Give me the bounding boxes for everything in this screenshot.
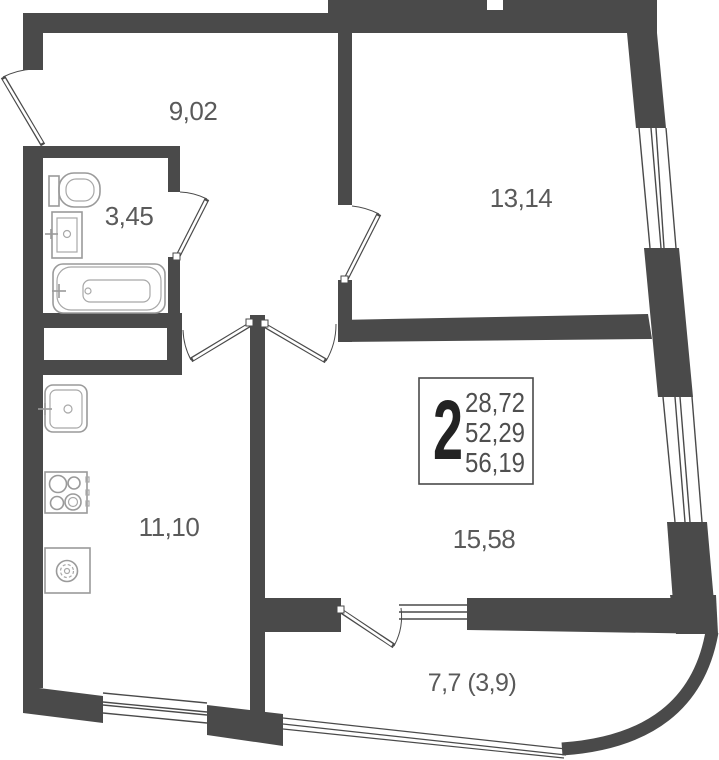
hallway-area-label: 9,02 — [169, 96, 218, 126]
walls — [23, 0, 718, 746]
room-count: 2 — [433, 383, 463, 477]
wash-basin-icon — [45, 212, 82, 258]
living-room-area-label: 15,58 — [453, 524, 516, 554]
bedroom-window — [639, 128, 676, 248]
toilet-icon — [49, 173, 100, 207]
washing-machine-icon — [45, 548, 90, 593]
apartment-info-box: 2 28,72 52,29 56,19 — [419, 378, 533, 484]
balcony-door-window — [399, 605, 467, 619]
balcony-railing — [283, 718, 566, 758]
floor-plan-drawing: 9,02 3,45 13,14 11,10 15,58 7,7 (3,9) 2 … — [0, 0, 719, 760]
bathtub-icon — [52, 264, 165, 313]
area-value-3: 56,19 — [465, 447, 525, 478]
area-value-2: 52,29 — [465, 417, 525, 448]
bathroom-area-label: 3,45 — [105, 201, 154, 231]
living-room-window — [663, 397, 702, 522]
bedroom-door — [341, 206, 379, 283]
stove-icon — [45, 472, 89, 513]
bedroom-area-label: 13,14 — [490, 183, 553, 213]
balcony-door — [337, 606, 402, 646]
kitchen-window — [103, 693, 207, 723]
balcony-area-label: 7,7 (3,9) — [428, 669, 517, 697]
kitchen-area-label: 11,10 — [139, 512, 200, 542]
kitchen-sink-icon — [38, 385, 87, 432]
kitchen-door — [183, 319, 253, 360]
entrance-door — [3, 69, 43, 145]
balcony-curved-wall — [562, 632, 712, 749]
living-room-door — [261, 320, 336, 361]
area-value-1: 28,72 — [465, 387, 525, 418]
floor-plan: 9,02 3,45 13,14 11,10 15,58 7,7 (3,9) 2 … — [0, 0, 719, 760]
bathroom-door — [173, 192, 207, 260]
